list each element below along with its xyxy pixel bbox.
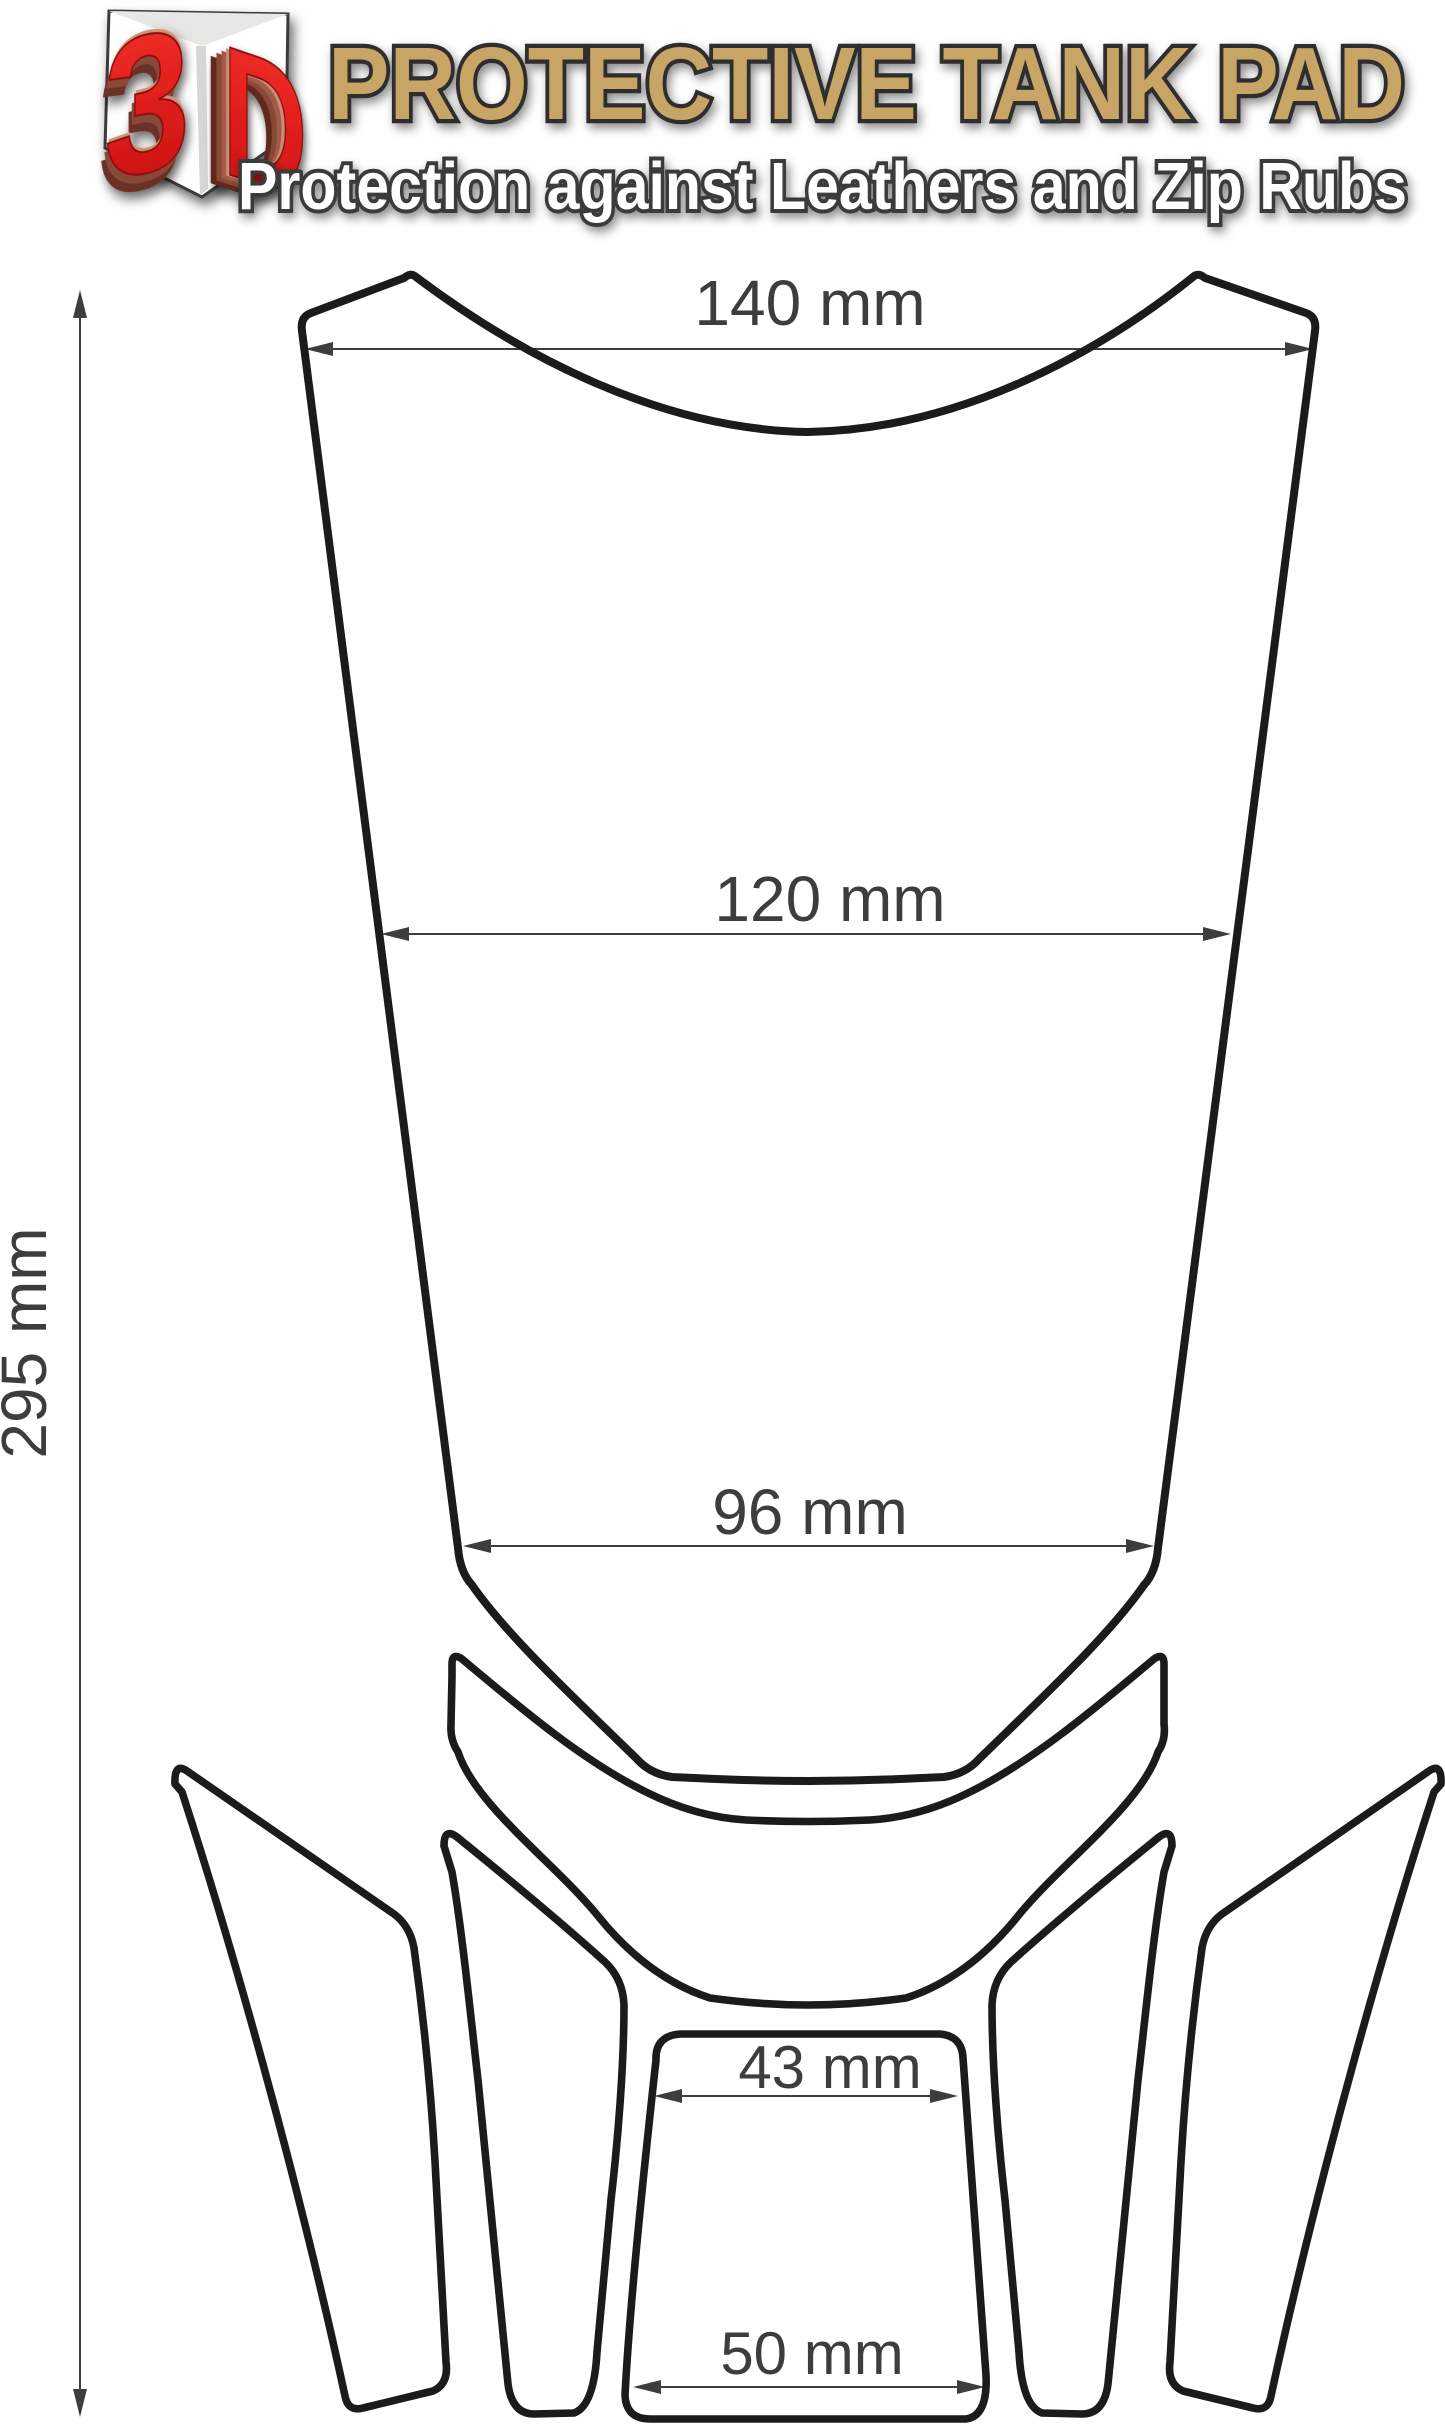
svg-text:50 mm: 50 mm — [720, 2320, 903, 2387]
svg-text:43 mm: 43 mm — [738, 2034, 921, 2101]
svg-text:120 mm: 120 mm — [714, 863, 945, 935]
svg-text:96 mm: 96 mm — [712, 1476, 908, 1548]
svg-text:140 mm: 140 mm — [694, 267, 925, 339]
svg-text:PROTECTIVE TANK PAD: PROTECTIVE TANK PAD — [328, 26, 1405, 141]
svg-text:3: 3 — [104, 0, 190, 223]
svg-text:Protection against Leathers an: Protection against Leathers and Zip Rubs — [238, 149, 1407, 224]
svg-text:295 mm: 295 mm — [0, 1227, 60, 1458]
